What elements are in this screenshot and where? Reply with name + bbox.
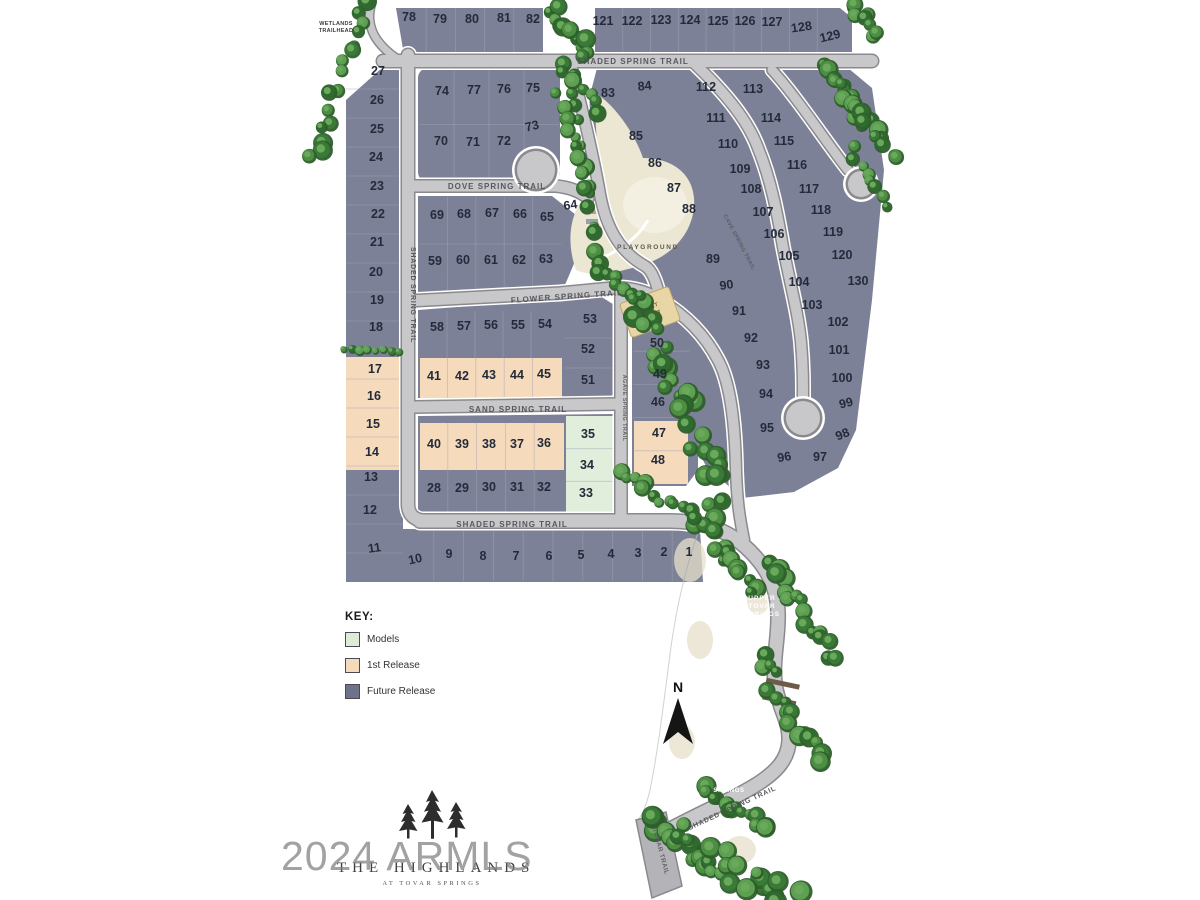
lot-number-93: 93 xyxy=(756,358,770,372)
lot-number-25: 25 xyxy=(370,122,384,136)
first-release-label: 1st Release xyxy=(367,660,420,671)
tree xyxy=(683,441,698,456)
tree xyxy=(874,136,891,153)
future-release-swatch xyxy=(345,684,360,699)
lot-number-29: 29 xyxy=(455,481,469,495)
lot-number-40: 40 xyxy=(427,437,441,451)
models-label: Models xyxy=(367,634,399,645)
lot-number-87: 87 xyxy=(667,181,681,195)
lot-number-102: 102 xyxy=(828,315,849,329)
lot-number-71: 71 xyxy=(466,135,480,149)
lot-number-107: 107 xyxy=(753,205,774,219)
lot-number-47: 47 xyxy=(652,426,666,440)
lot-number-53: 53 xyxy=(583,312,597,326)
lot-number-124: 124 xyxy=(680,13,701,27)
lot-number-128: 128 xyxy=(790,19,813,36)
lot-number-5: 5 xyxy=(578,548,585,562)
tree xyxy=(767,871,788,892)
lot-number-59: 59 xyxy=(428,254,442,268)
lot-number-2: 2 xyxy=(661,545,668,559)
lot-number-56: 56 xyxy=(484,318,498,332)
lot-number-114: 114 xyxy=(761,111,781,125)
tree xyxy=(654,498,664,508)
future-release-label: Future Release xyxy=(367,686,435,697)
lot-number-117: 117 xyxy=(799,182,819,196)
lot-number-127: 127 xyxy=(762,15,783,29)
tree xyxy=(677,415,696,434)
tree xyxy=(877,190,890,203)
lot-number-61: 61 xyxy=(484,253,498,267)
lot-number-109: 109 xyxy=(730,162,751,176)
lot-number-122: 122 xyxy=(622,14,643,28)
tree xyxy=(576,180,593,197)
middle-tovar-springs-line3: SPRINGS xyxy=(713,788,744,794)
lot-number-91: 91 xyxy=(732,304,746,318)
tree xyxy=(575,166,589,180)
lot-number-38: 38 xyxy=(482,437,496,451)
street-label-sand: SAND SPRING TRAIL xyxy=(469,405,567,414)
lot-number-65: 65 xyxy=(540,210,554,224)
tree xyxy=(706,464,728,486)
lot-number-16: 16 xyxy=(367,389,381,403)
first-release-swatch xyxy=(345,658,360,673)
lot-number-49: 49 xyxy=(653,367,667,381)
lot-number-125: 125 xyxy=(708,14,729,28)
lot-number-45: 45 xyxy=(537,367,551,381)
lot-number-36: 36 xyxy=(537,436,551,450)
playground-label: PLAYGROUND xyxy=(617,244,679,251)
tree xyxy=(730,564,746,580)
lot-number-121: 121 xyxy=(593,14,614,28)
tree xyxy=(586,224,603,241)
tree xyxy=(580,199,595,214)
lot-number-89: 89 xyxy=(706,252,720,266)
lot-number-43: 43 xyxy=(482,368,496,382)
cul-de-sac xyxy=(786,401,820,435)
lot-number-55: 55 xyxy=(511,318,525,332)
tree xyxy=(835,78,847,90)
lot-number-101: 101 xyxy=(829,343,850,357)
lot-number-120: 120 xyxy=(832,248,853,262)
street-label-shaded-top: SHADED SPRING TRAIL xyxy=(577,57,688,66)
tree xyxy=(705,522,723,540)
map-key: KEY: Models 1st Release Future Release xyxy=(345,611,435,710)
lot-number-57: 57 xyxy=(457,319,471,333)
lot-number-30: 30 xyxy=(482,480,496,494)
lot-number-39: 39 xyxy=(455,437,469,451)
tree xyxy=(756,818,776,838)
lot-number-69: 69 xyxy=(430,208,444,222)
lot-number-79: 79 xyxy=(433,12,447,26)
tree xyxy=(713,492,731,510)
upper-tovar-springs-line3: SPRINGS xyxy=(744,611,780,618)
lot-number-72: 72 xyxy=(497,134,511,148)
lot-number-66: 66 xyxy=(513,207,527,221)
lot-number-44: 44 xyxy=(510,368,524,382)
wetlands-trailhead-label-line1: WETLANDS xyxy=(319,21,353,27)
tree xyxy=(771,666,783,678)
lot-number-18: 18 xyxy=(369,320,383,334)
tree xyxy=(854,113,871,130)
tree xyxy=(810,751,831,772)
lot-number-105: 105 xyxy=(779,249,800,263)
lot-number-82: 82 xyxy=(526,12,540,26)
tree xyxy=(681,833,694,846)
lot-number-92: 92 xyxy=(744,331,758,345)
tree xyxy=(727,855,747,875)
tree xyxy=(667,498,679,510)
lot-number-3: 3 xyxy=(635,546,642,560)
tree xyxy=(302,149,317,164)
lot-number-76: 76 xyxy=(497,82,511,96)
lot-number-46: 46 xyxy=(651,395,665,409)
lot-number-85: 85 xyxy=(629,129,643,143)
lot-number-37: 37 xyxy=(510,437,524,451)
lot-number-50: 50 xyxy=(650,336,664,350)
tree xyxy=(657,380,672,395)
tree xyxy=(636,290,647,301)
lot-number-115: 115 xyxy=(774,134,794,148)
community-tagline: AT TOVAR SPRINGS xyxy=(337,880,527,887)
lot-number-118: 118 xyxy=(811,203,831,217)
lot-number-62: 62 xyxy=(512,253,526,267)
lot-number-86: 86 xyxy=(648,156,662,170)
tree xyxy=(700,837,722,859)
lot-number-41: 41 xyxy=(427,369,441,383)
lot-number-42: 42 xyxy=(455,369,469,383)
tree xyxy=(888,149,904,165)
key-row-first-release: 1st Release xyxy=(345,658,435,673)
tree xyxy=(588,105,606,123)
lot-number-17: 17 xyxy=(368,362,382,376)
tree xyxy=(321,84,338,101)
lot-number-116: 116 xyxy=(787,158,807,172)
lot-number-130: 130 xyxy=(848,274,869,288)
lot-number-78: 78 xyxy=(402,10,416,24)
lot-number-51: 51 xyxy=(581,373,595,387)
lot-number-100: 100 xyxy=(832,371,853,385)
tree xyxy=(736,878,758,900)
upper-tovar-springs-line2: TOVAR xyxy=(748,603,775,610)
lot-number-52: 52 xyxy=(581,342,595,356)
lot-number-60: 60 xyxy=(456,253,470,267)
lot-number-103: 103 xyxy=(802,298,823,312)
lot-number-26: 26 xyxy=(370,93,384,107)
middle-tovar-springs-line2: TOVAR xyxy=(717,781,741,787)
lot-number-88: 88 xyxy=(682,202,696,216)
lot-number-20: 20 xyxy=(369,265,383,279)
lot-number-81: 81 xyxy=(497,11,511,25)
tree xyxy=(316,122,328,134)
lot-number-13: 13 xyxy=(364,470,378,484)
lot-number-90: 90 xyxy=(719,277,735,293)
armls-watermark: 2024 ARMLS xyxy=(281,833,533,880)
lot-number-9: 9 xyxy=(446,547,453,561)
tree xyxy=(882,202,892,212)
lot-number-4: 4 xyxy=(608,547,615,561)
lot-number-33: 33 xyxy=(579,486,593,500)
tree xyxy=(344,42,361,59)
lot-number-11: 11 xyxy=(367,540,382,556)
tree xyxy=(827,650,844,667)
tree xyxy=(570,149,587,166)
lot-number-8: 8 xyxy=(480,549,487,563)
lot-number-80: 80 xyxy=(465,12,479,26)
lot-number-48: 48 xyxy=(651,453,665,467)
lot-number-7: 7 xyxy=(513,549,520,563)
tree xyxy=(322,104,335,117)
lot-number-1: 1 xyxy=(686,545,693,559)
lot-number-111: 111 xyxy=(706,111,726,125)
middle-tovar-springs-line1: MIDDLE xyxy=(716,774,743,780)
lot-number-12: 12 xyxy=(363,503,377,517)
lot-number-54: 54 xyxy=(538,317,552,331)
lot-number-74: 74 xyxy=(435,84,449,98)
lot-number-75: 75 xyxy=(526,81,540,95)
lot-number-58: 58 xyxy=(430,320,444,334)
key-title: KEY: xyxy=(345,611,435,623)
lot-number-119: 119 xyxy=(823,225,843,239)
lot-number-15: 15 xyxy=(366,417,380,431)
tree xyxy=(560,123,576,139)
lot-number-21: 21 xyxy=(370,235,384,249)
tree xyxy=(635,316,652,333)
tree xyxy=(687,510,702,525)
lot-number-96: 96 xyxy=(776,449,792,465)
lot-number-24: 24 xyxy=(369,150,383,164)
lot-number-63: 63 xyxy=(539,252,553,266)
tree xyxy=(848,140,861,153)
lot-number-64: 64 xyxy=(563,197,579,213)
lot-number-68: 68 xyxy=(457,207,471,221)
lot-number-95: 95 xyxy=(760,421,774,435)
lot-number-84: 84 xyxy=(637,78,652,93)
lot-number-32: 32 xyxy=(537,480,551,494)
street-label-agave-vertical: AGAVE SPRING TRAIL xyxy=(621,375,627,442)
tree xyxy=(751,867,764,880)
lot-number-106: 106 xyxy=(764,227,785,241)
lot-number-10: 10 xyxy=(407,551,424,568)
models-swatch xyxy=(345,632,360,647)
lot-number-110: 110 xyxy=(718,137,738,151)
lot-number-35: 35 xyxy=(581,427,595,441)
lot-number-104: 104 xyxy=(789,275,810,289)
site-plan-page: SPORT COURT SHADED SPRING TRAIL DOVE SPR… xyxy=(0,0,1200,900)
tree xyxy=(846,152,860,166)
lot-number-83: 83 xyxy=(601,86,615,100)
tree xyxy=(336,65,349,78)
street-label-shaded-left-vertical: SHADED SPRING TRAIL xyxy=(409,247,416,343)
tree xyxy=(790,880,813,900)
lot-number-6: 6 xyxy=(546,549,553,563)
key-row-future-release: Future Release xyxy=(345,684,435,699)
lot-number-126: 126 xyxy=(735,14,756,28)
lot-number-112: 112 xyxy=(696,80,716,94)
tree xyxy=(694,426,712,444)
lot-number-34: 34 xyxy=(580,458,594,472)
tree xyxy=(352,25,365,38)
lot-number-108: 108 xyxy=(741,182,762,196)
tree xyxy=(550,88,561,99)
lot-number-27: 27 xyxy=(371,64,385,78)
lot-number-23: 23 xyxy=(370,179,384,193)
lot-number-77: 77 xyxy=(467,83,481,97)
lot-number-113: 113 xyxy=(743,82,763,96)
key-row-models: Models xyxy=(345,632,435,647)
tree xyxy=(869,25,884,40)
wetlands-trailhead-label-line2: TRAILHEAD xyxy=(319,28,353,34)
tree xyxy=(651,322,664,335)
lot-number-94: 94 xyxy=(759,387,773,401)
lot-number-22: 22 xyxy=(371,207,385,221)
tree xyxy=(821,633,838,650)
tree xyxy=(766,563,787,584)
lot-number-28: 28 xyxy=(427,481,441,495)
street-label-dove: DOVE SPRING TRAIL xyxy=(448,182,546,191)
lot-number-19: 19 xyxy=(370,293,384,307)
upper-tovar-springs-line1: UPPER xyxy=(748,595,775,602)
lot-number-31: 31 xyxy=(510,480,524,494)
site-map: SPORT COURT SHADED SPRING TRAIL DOVE SPR… xyxy=(0,0,1200,900)
street-label-shaded-bottom: SHADED SPRING TRAIL xyxy=(456,520,567,529)
lot-number-70: 70 xyxy=(434,134,448,148)
lot-number-14: 14 xyxy=(365,445,379,459)
north-label: N xyxy=(673,679,683,695)
lot-number-67: 67 xyxy=(485,206,499,220)
lot-number-97: 97 xyxy=(813,450,827,464)
lot-number-123: 123 xyxy=(651,13,672,27)
